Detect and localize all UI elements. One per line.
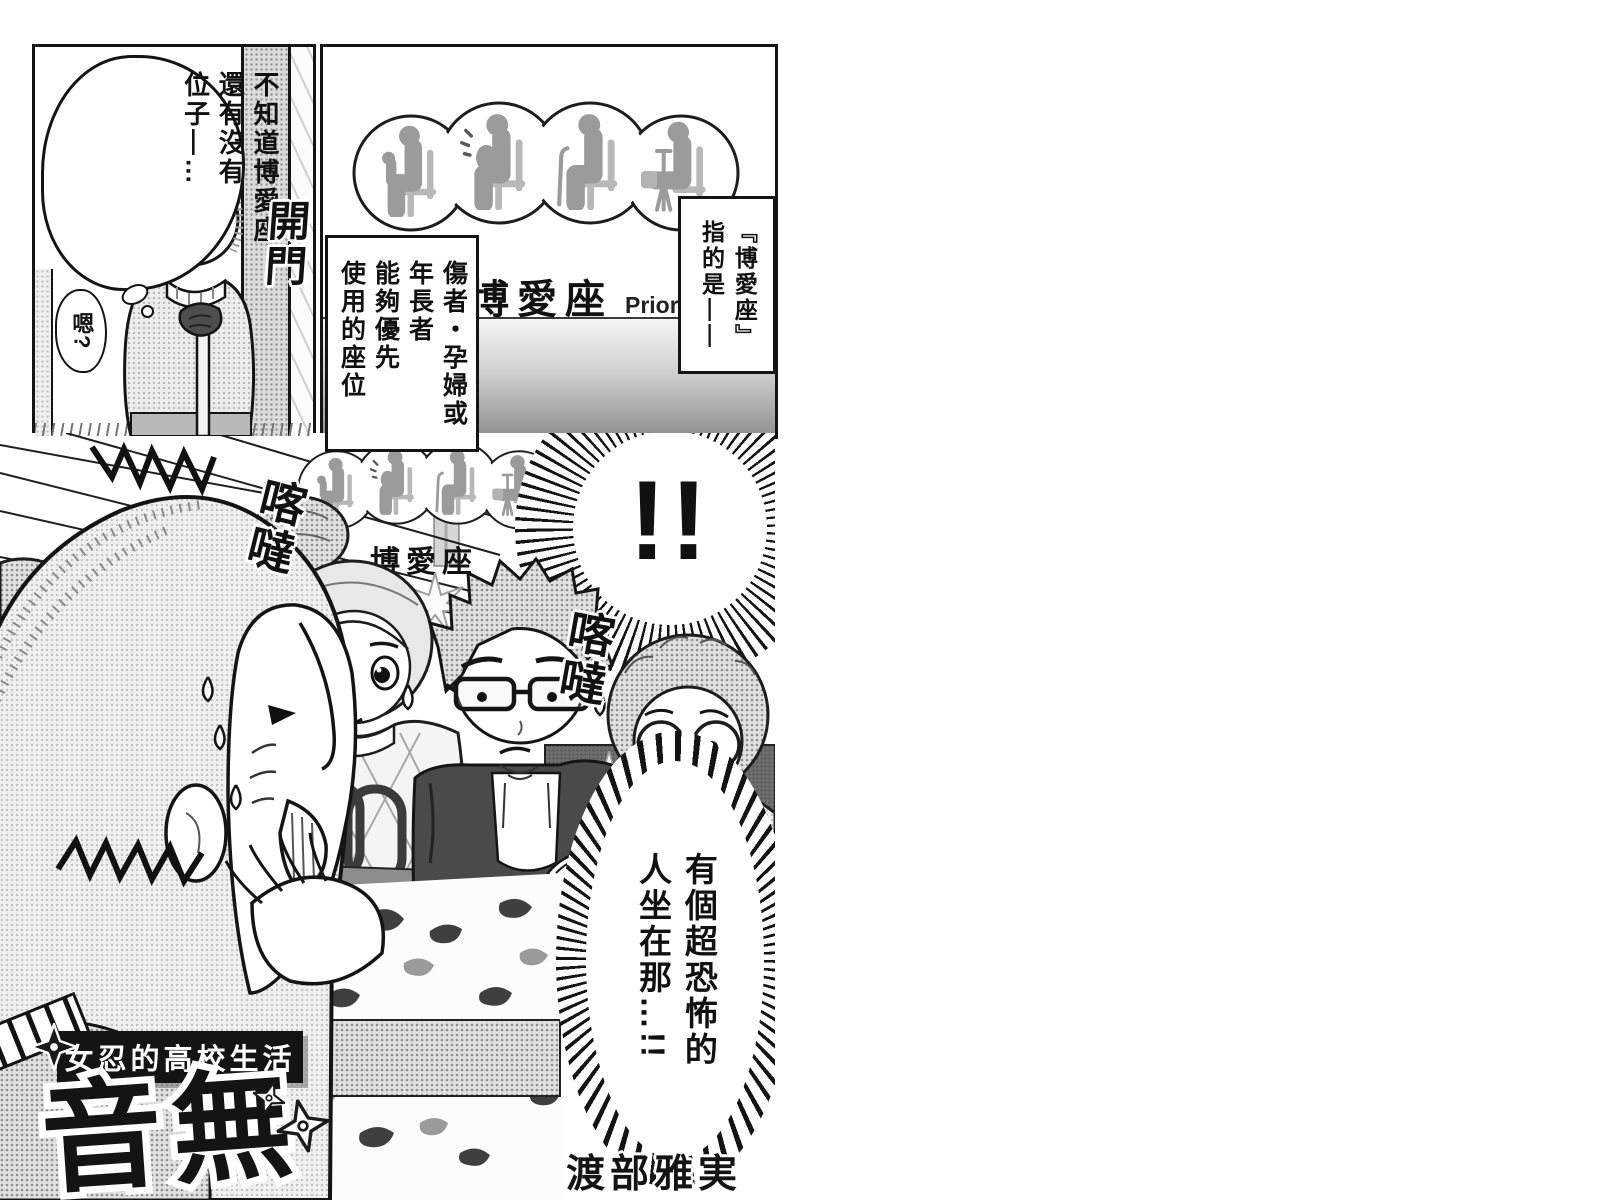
panel-train-door: 不知道博愛座 還有沒有 位子—… 嗯? 開門 [32, 44, 316, 439]
thought-line: 還有沒有 [214, 71, 246, 276]
shuriken-icon [30, 1023, 78, 1071]
narration-box-intro: 『博愛座』 指的是—— [678, 196, 776, 374]
narration-box-description: 傷者・孕婦或 年長者 能夠優先 使用的座位 [325, 235, 479, 452]
murmur-text: 嗯? [68, 312, 95, 349]
wall-strip [35, 269, 53, 436]
narration-description-text: 傷者・孕婦或 年長者 能夠優先 使用的座位 [333, 260, 472, 428]
panel-train-interior: 博愛座 !! [0, 433, 775, 1200]
shuriken-icon [271, 1094, 335, 1158]
gloved-hand [180, 303, 222, 335]
hand [252, 877, 383, 984]
logo-text: 音無 [37, 1057, 306, 1200]
murmur-bubble: 嗯? [55, 289, 107, 373]
sign-label-zh: 博愛座 [469, 267, 613, 325]
speech-text: 有個超恐怖的 人坐在那…!! [628, 852, 723, 1068]
manga-page: 不知道博愛座 還有沒有 位子—… 嗯? 開門 博愛座 Pr [0, 0, 1600, 1200]
thought-line: 位子—… [179, 71, 211, 276]
thought-bubble-tail [141, 305, 154, 318]
narration-intro-text: 『博愛座』 指的是—— [693, 220, 762, 350]
cane [197, 323, 209, 436]
author-credit: 渡部雅実 [566, 1143, 742, 1199]
sfx-door-opening: 開門 [256, 199, 314, 289]
